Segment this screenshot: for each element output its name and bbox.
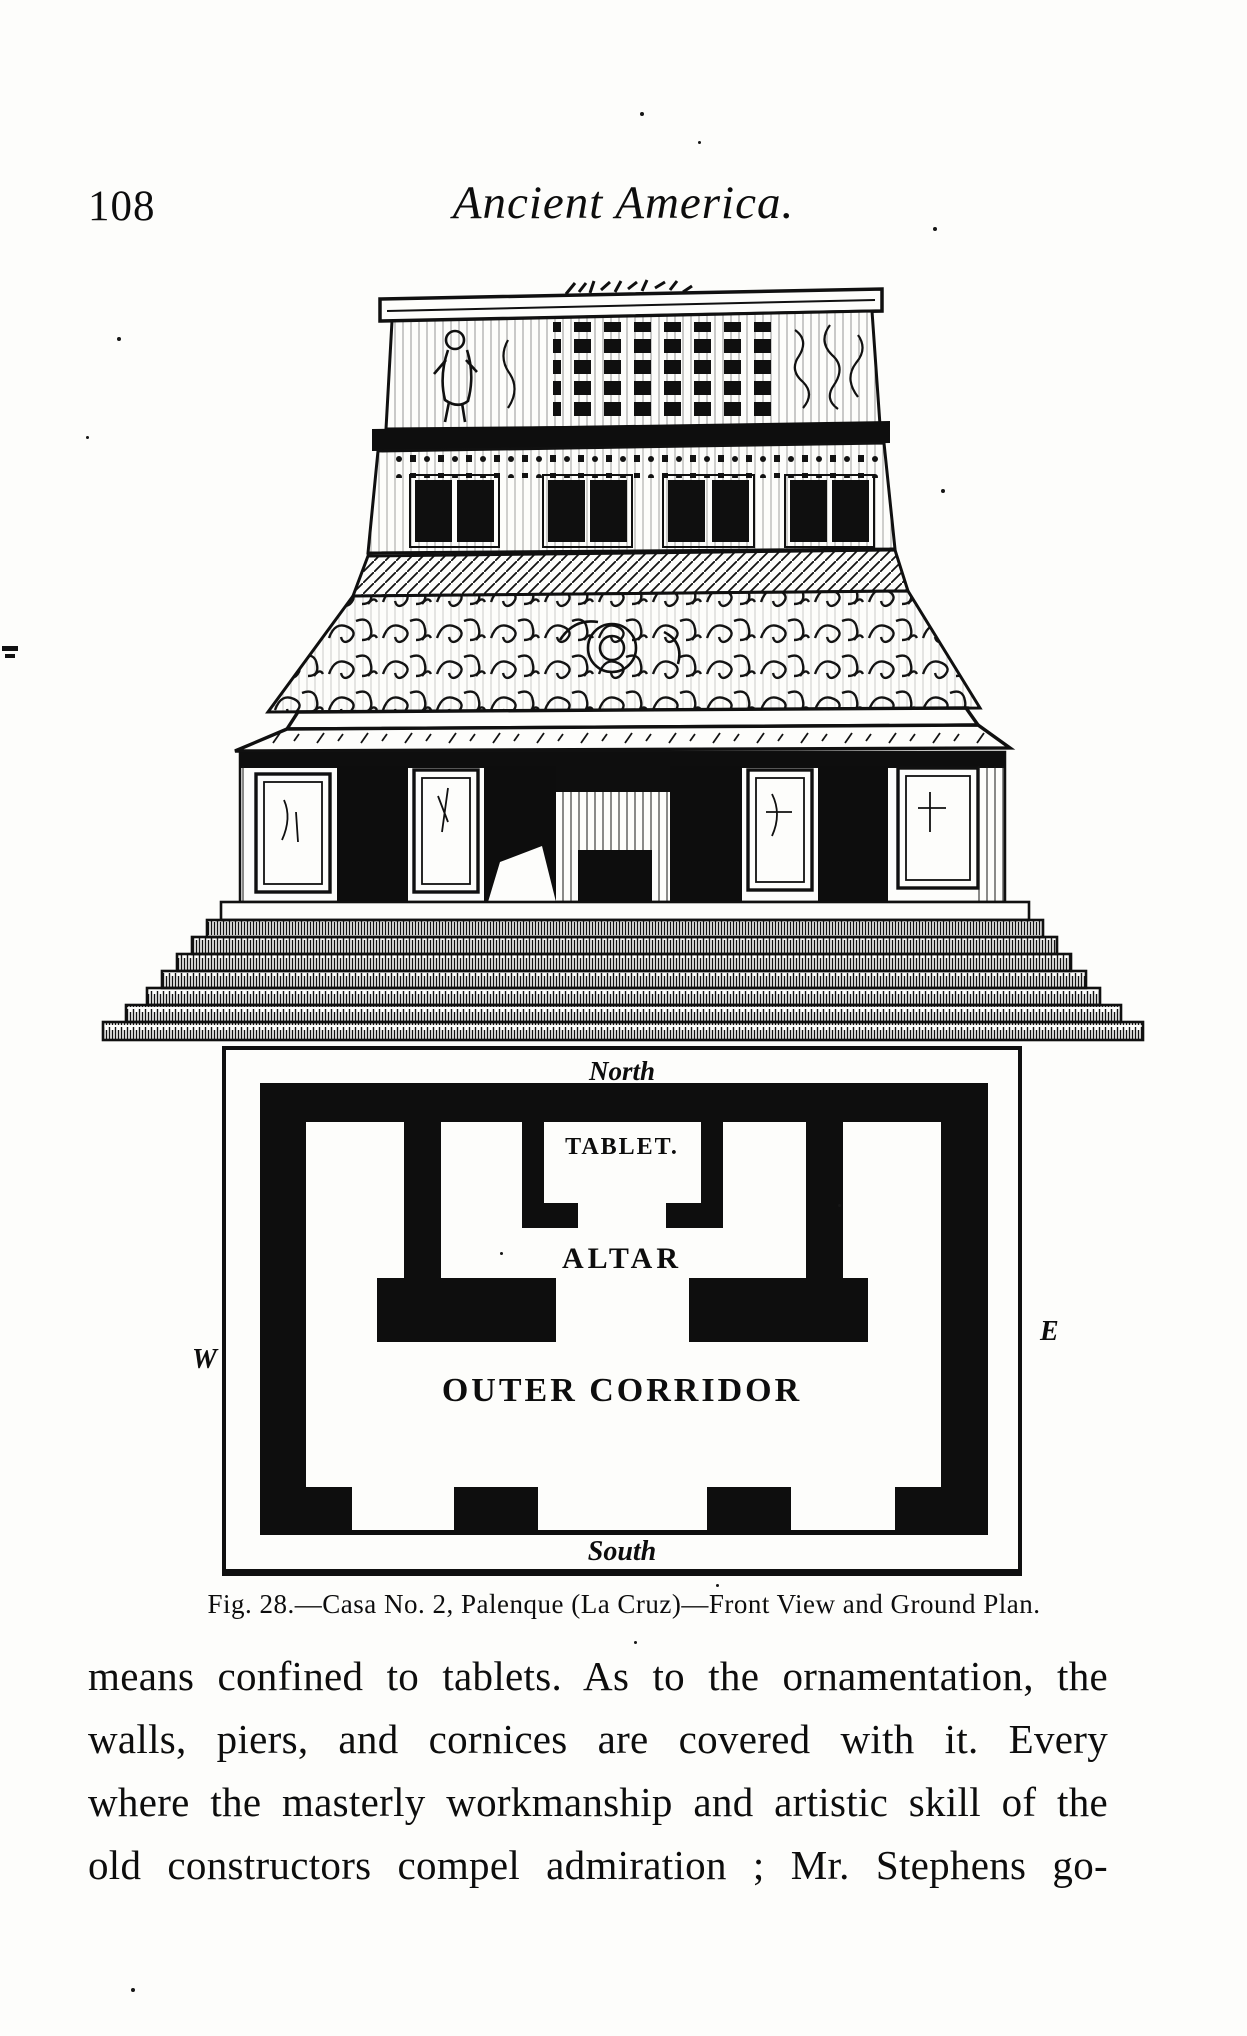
plan-wall-north bbox=[260, 1083, 982, 1122]
scan-speck bbox=[86, 436, 89, 439]
figure-caption: Fig. 28.—Casa No. 2, Palenque (La Cruz)—… bbox=[128, 1589, 1120, 1620]
scan-speck bbox=[716, 1584, 719, 1587]
body-line: means confined to tablets. As to the orn… bbox=[88, 1652, 1108, 1715]
scan-speck bbox=[838, 1204, 841, 1207]
step-band bbox=[221, 902, 1029, 920]
scan-speck bbox=[131, 1988, 135, 1992]
scan-speck bbox=[698, 141, 701, 144]
plan-wall-west-foot bbox=[306, 1487, 352, 1535]
plan-label-south: South bbox=[226, 1536, 1018, 1568]
scan-speck bbox=[941, 489, 945, 493]
margin-artifact bbox=[2, 644, 22, 660]
step-band bbox=[162, 971, 1086, 988]
step-band bbox=[103, 1022, 1143, 1040]
plan-label-tablet: TABLET. bbox=[226, 1134, 1018, 1161]
scan-speck bbox=[634, 1641, 637, 1644]
body-line: where the masterly workmanship and artis… bbox=[88, 1778, 1108, 1841]
scan-speck bbox=[117, 337, 121, 341]
step-band bbox=[192, 937, 1057, 954]
upper-frieze-tier bbox=[368, 443, 895, 553]
plan-pier-south-2 bbox=[707, 1487, 791, 1535]
cornice-stripe-band bbox=[353, 550, 908, 596]
scan-speck bbox=[640, 112, 644, 116]
steps-platform bbox=[103, 902, 1143, 1040]
central-pier bbox=[556, 766, 670, 902]
plan-label-east: E bbox=[1040, 1316, 1059, 1348]
plan-pier-block-left bbox=[377, 1278, 556, 1342]
plan-pier-south-1 bbox=[454, 1487, 538, 1535]
plan-label-altar: ALTAR bbox=[226, 1242, 1018, 1276]
scan-speck bbox=[933, 227, 937, 231]
doorway-4 bbox=[818, 766, 888, 902]
sculpture-frieze bbox=[268, 591, 980, 712]
roof-comb bbox=[386, 311, 880, 429]
eave-cornice bbox=[235, 708, 1010, 751]
comb-window-grid bbox=[553, 322, 775, 416]
scan-speck bbox=[500, 1252, 503, 1255]
ground-plan: North TABLET. ALTAR OUTER CORRIDOR South bbox=[222, 1046, 1022, 1576]
step-band bbox=[126, 1005, 1121, 1022]
plan-threshold-line bbox=[260, 1530, 988, 1535]
body-line: old constructors compel admiration ; Mr.… bbox=[88, 1841, 1108, 1904]
wall-shadow-band bbox=[240, 752, 1005, 768]
plan-wall-east-foot bbox=[895, 1487, 941, 1535]
plan-tablet-foot-right bbox=[666, 1203, 701, 1228]
plan-pier-block-right bbox=[689, 1278, 868, 1342]
main-wall bbox=[240, 752, 1005, 902]
step-band bbox=[177, 954, 1071, 971]
plan-label-outer-corridor: OUTER CORRIDOR bbox=[226, 1372, 1018, 1410]
plan-tablet-foot-left bbox=[544, 1203, 578, 1228]
book-page: 108 Ancient America. bbox=[0, 0, 1247, 2036]
body-line: walls, piers, and cornices are covered w… bbox=[88, 1715, 1108, 1778]
body-paragraph: means confined to tablets. As to the orn… bbox=[88, 1652, 1108, 1904]
plan-label-west: W bbox=[192, 1344, 217, 1376]
step-band bbox=[147, 988, 1100, 1005]
step-band bbox=[207, 920, 1043, 937]
doorway-3 bbox=[670, 766, 742, 902]
doorway-1 bbox=[337, 766, 408, 902]
